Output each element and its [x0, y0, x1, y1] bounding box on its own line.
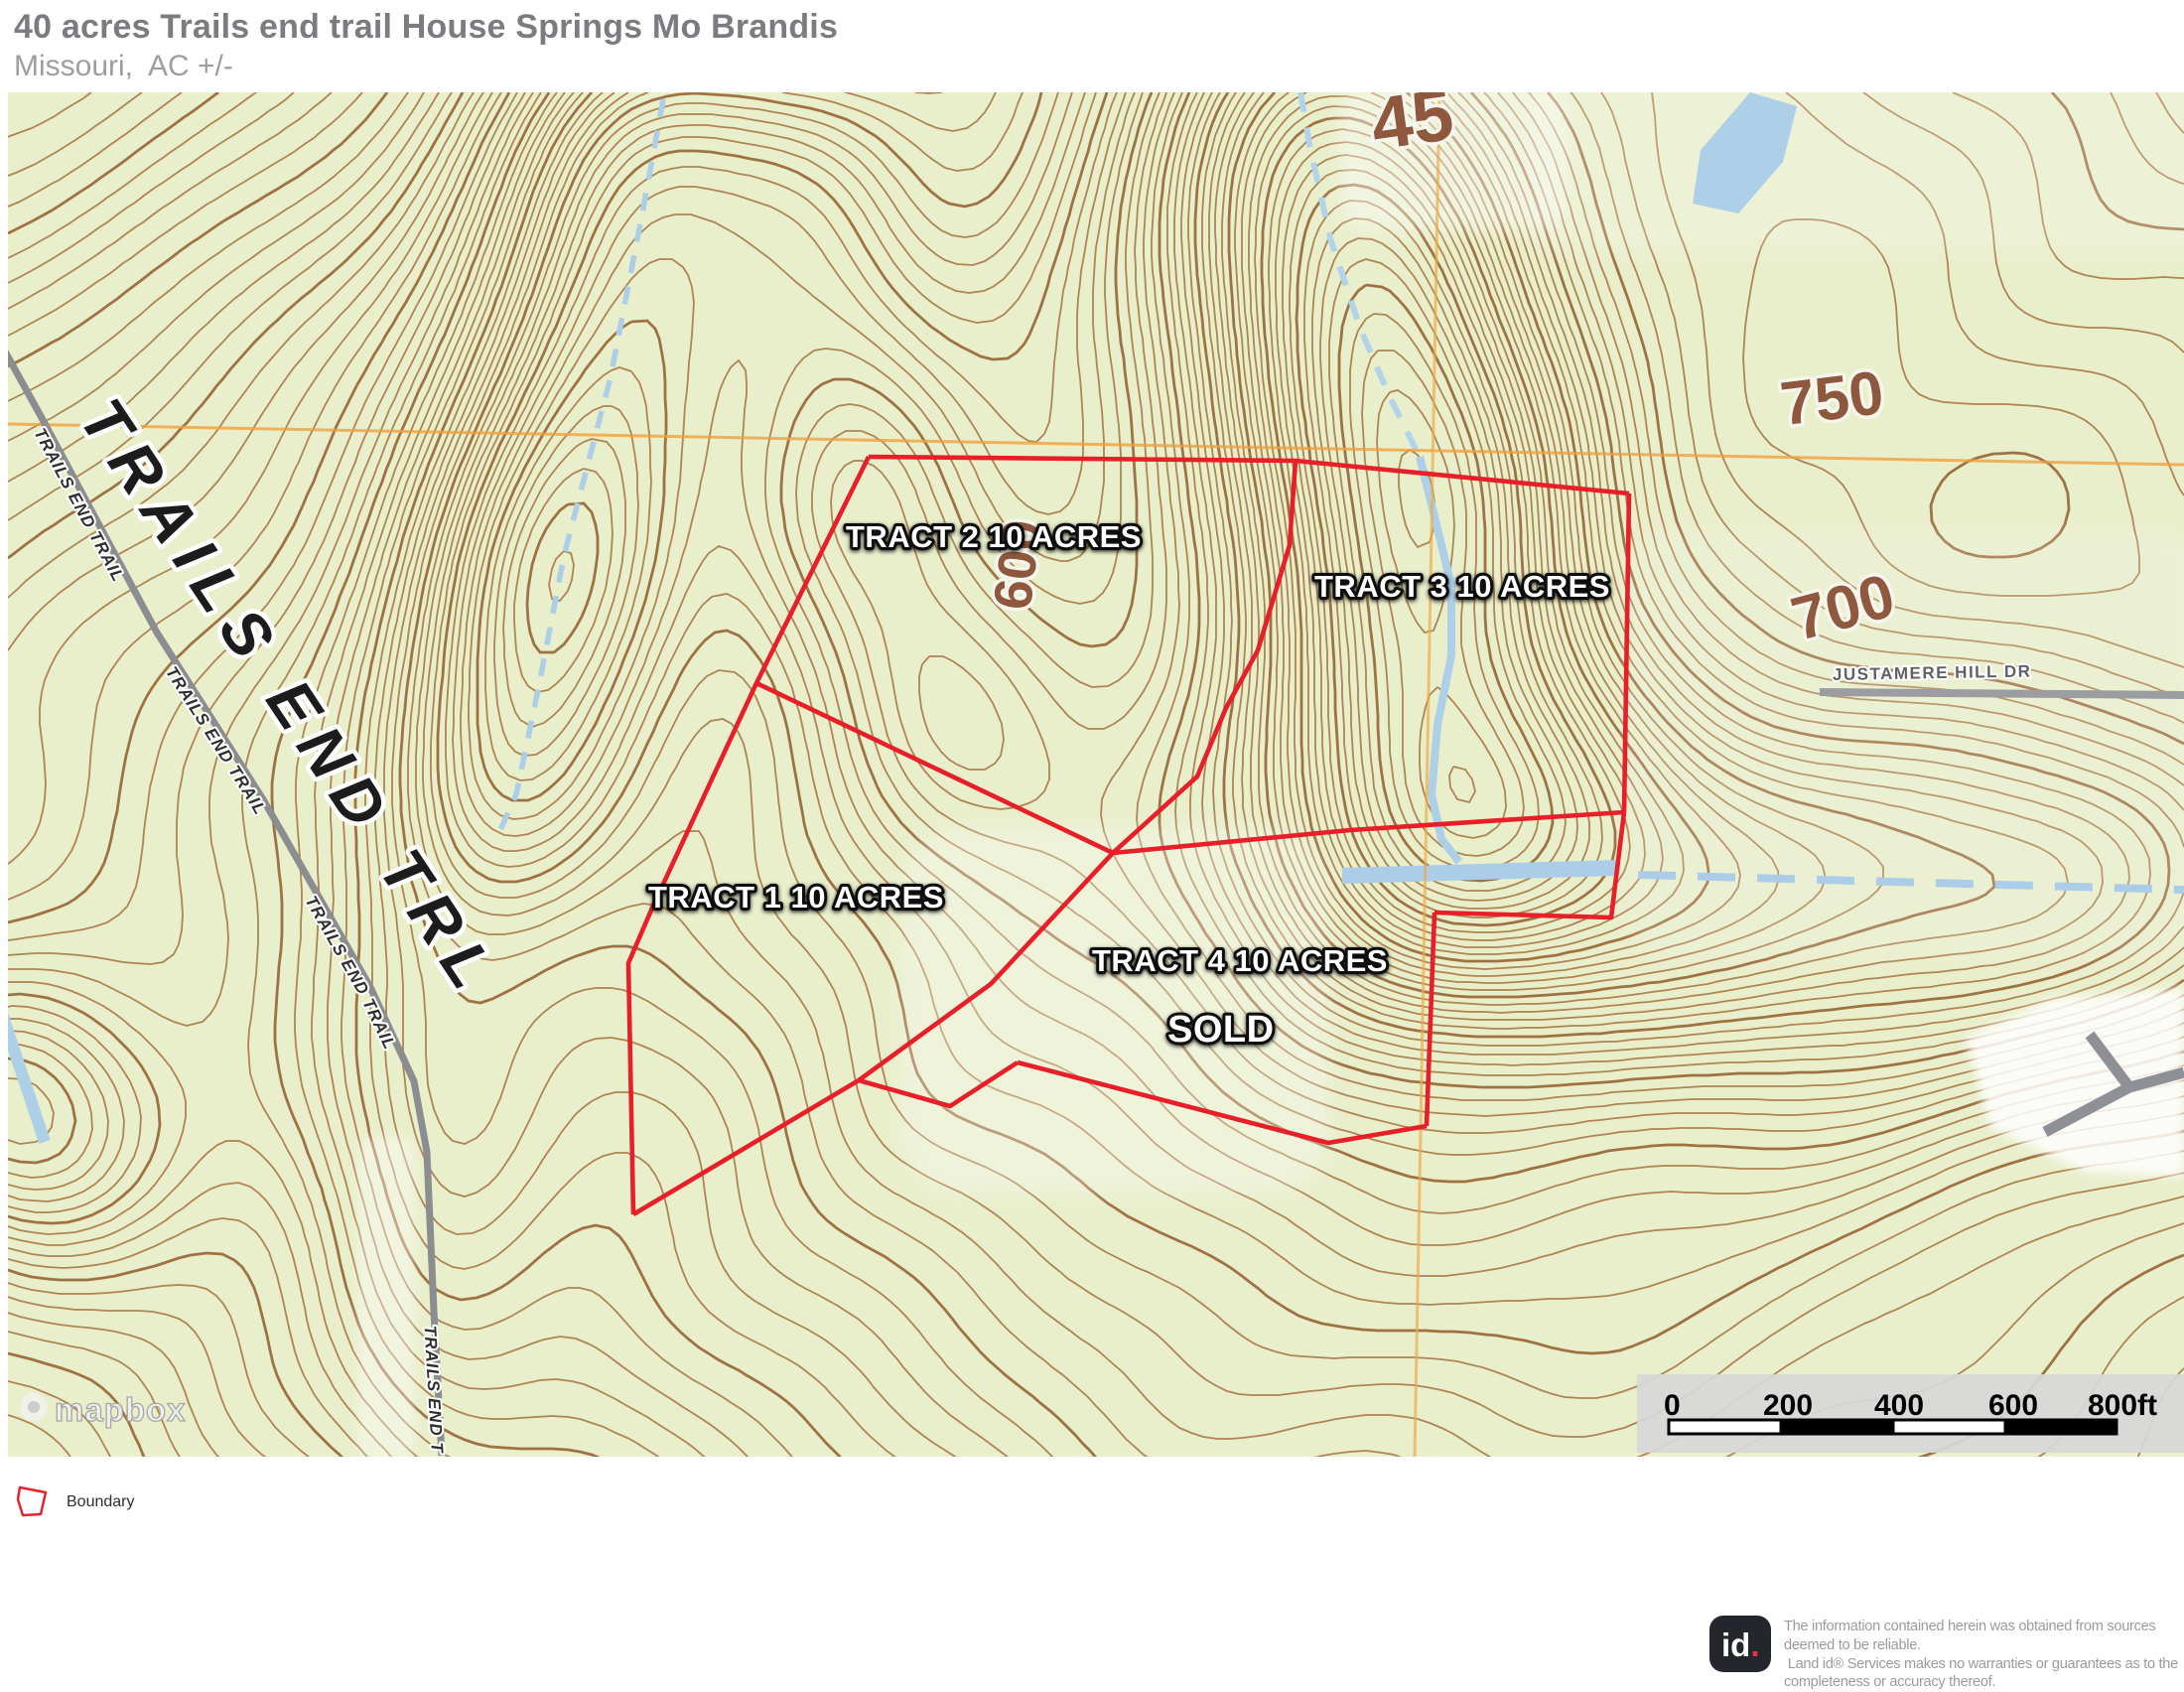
- svg-text:SOLD: SOLD: [1167, 1009, 1275, 1051]
- svg-text:TRACT 1 10 ACRES: TRACT 1 10 ACRES: [648, 880, 944, 915]
- svg-text:mapbox: mapbox: [55, 1391, 187, 1428]
- svg-text:750: 750: [1777, 358, 1887, 439]
- svg-text:200: 200: [1763, 1389, 1813, 1422]
- svg-text:TRAILS END TRAIL: TRAILS END TRAIL: [8, 92, 15, 96]
- svg-text:JUSTAMERE HILL DR: JUSTAMERE HILL DR: [1833, 662, 2032, 684]
- svg-text:TRACT 4 10 ACRES: TRACT 4 10 ACRES: [1092, 943, 1388, 978]
- svg-text:800ft: 800ft: [2088, 1389, 2157, 1422]
- svg-text:45: 45: [1366, 92, 1458, 166]
- svg-text:400: 400: [1874, 1389, 1924, 1422]
- svg-text:TRACT 3 10 ACRES: TRACT 3 10 ACRES: [1314, 569, 1610, 604]
- svg-text:600: 600: [1988, 1389, 2038, 1422]
- svg-text:TRAILS END TRAIL: TRAILS END TRAIL: [301, 893, 399, 1053]
- svg-text:TRACT 2 10 ACRES: TRACT 2 10 ACRES: [846, 519, 1142, 554]
- svg-text:0: 0: [1664, 1389, 1681, 1422]
